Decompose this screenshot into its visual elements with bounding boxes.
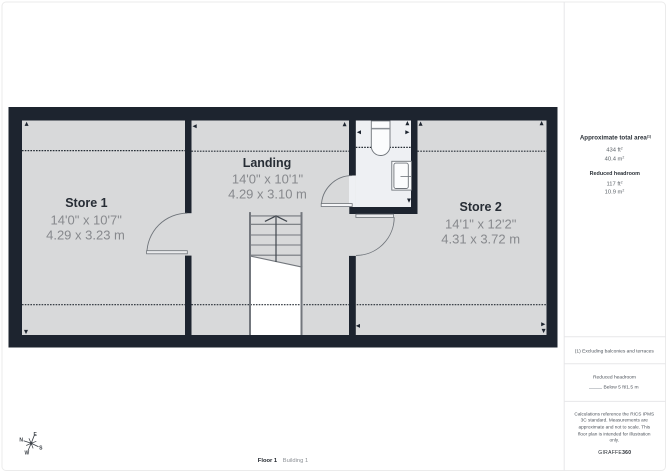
svg-text:W: W <box>25 450 30 456</box>
svg-text:S: S <box>39 446 43 452</box>
svg-text:N: N <box>19 438 23 444</box>
svg-text:E: E <box>34 432 38 438</box>
